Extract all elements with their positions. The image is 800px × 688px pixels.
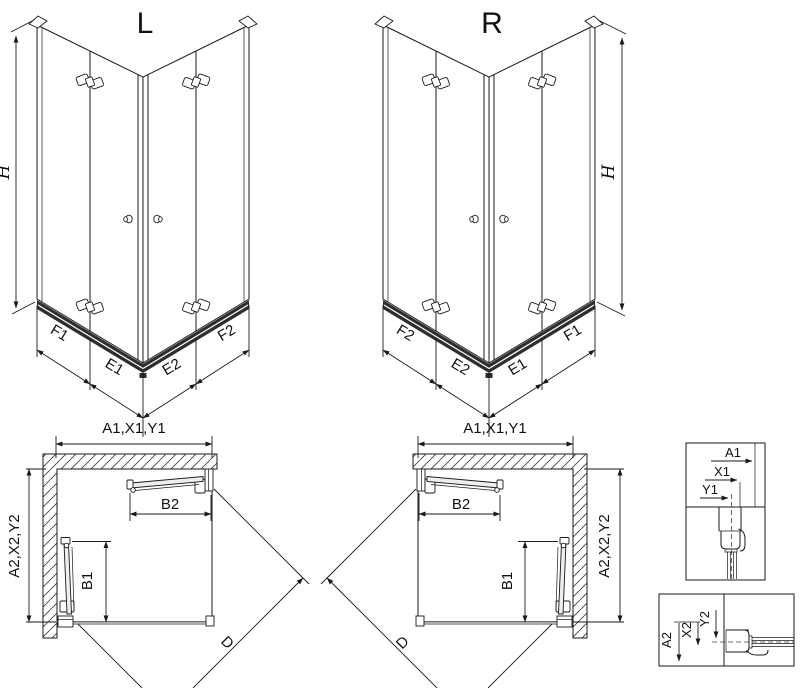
dim-label-y1: Y1 (702, 482, 718, 497)
shower-enclosure-diagram: L H (0, 0, 800, 688)
top-door-plan (127, 469, 213, 493)
wall-profile-section (726, 630, 794, 655)
dim-label-x1: X1 (714, 464, 730, 479)
detail-bottom-dims: A2 X2 Y2 (659, 610, 716, 661)
iso-view-left: L H (0, 7, 257, 437)
door-knob-icon (154, 215, 162, 223)
technical-drawing-sheet: L H (0, 0, 800, 688)
dim-height-left: H (0, 20, 35, 314)
wall-profile-section (719, 507, 745, 579)
dim-label-h: H (599, 163, 619, 180)
dim-b1-right-plan: B1 (499, 542, 558, 623)
dim-d-right-plan: D (321, 489, 552, 688)
dim-label-a1x1y1: A1,X1,Y1 (463, 420, 526, 437)
door-knob-icon (124, 215, 132, 223)
dim-label-a1x1y1: A1,X1,Y1 (102, 420, 165, 437)
dim-label-h: H (0, 163, 14, 180)
door-knob-icon (500, 215, 508, 223)
dim-label-b2: B2 (452, 496, 470, 513)
dim-label-b1: B1 (499, 572, 516, 590)
dim-b2-right-plan: B2 (419, 493, 500, 521)
dim-b1-left-plan: B1 (72, 542, 111, 623)
top-door-plan (417, 469, 503, 493)
corner-cap (239, 16, 257, 28)
dim-label-a2x2y2: A2,X2,Y2 (596, 514, 613, 577)
iso-right-label: R (481, 7, 503, 40)
corner-cap (29, 16, 47, 28)
dim-label-a2: A2 (659, 632, 674, 648)
dim-label-d: D (393, 633, 413, 653)
corner-cap (585, 16, 603, 28)
dim-label-b2: B2 (161, 496, 179, 513)
dim-label-b1: B1 (79, 572, 96, 590)
detail-box-bottom: A2 X2 Y2 (659, 594, 794, 666)
dim-label-d: D (217, 633, 237, 653)
dim-a1-right-plan: A1,X1,Y1 (418, 420, 573, 458)
door-knob-icon (470, 215, 478, 223)
detail-box-top: A1 X1 Y1 (686, 443, 765, 580)
dim-label-x2: X2 (679, 622, 694, 638)
iso-left-label: L (137, 7, 154, 40)
corner-cap (375, 16, 393, 28)
dim-b2-left-plan: B2 (130, 493, 211, 521)
dim-d-left-plan: D (78, 489, 309, 688)
dim-height-right: H (597, 20, 626, 316)
iso-view-right: R H (375, 7, 626, 437)
dim-label-a1: A1 (725, 445, 741, 460)
plan-view-left: A1,X1,Y1 A2,X2,Y2 B2 B1 D (6, 420, 309, 688)
dim-a1-left-plan: A1,X1,Y1 (56, 420, 212, 458)
dim-label-y2: Y2 (697, 611, 712, 627)
plan-view-right: A1,X1,Y1 A2,X2,Y2 B2 B1 D (321, 420, 624, 688)
side-door-plan (58, 538, 74, 628)
side-door-plan (556, 538, 572, 628)
detail-top-dims: A1 X1 Y1 (700, 445, 752, 498)
dim-label-a2x2y2: A2,X2,Y2 (6, 514, 23, 577)
